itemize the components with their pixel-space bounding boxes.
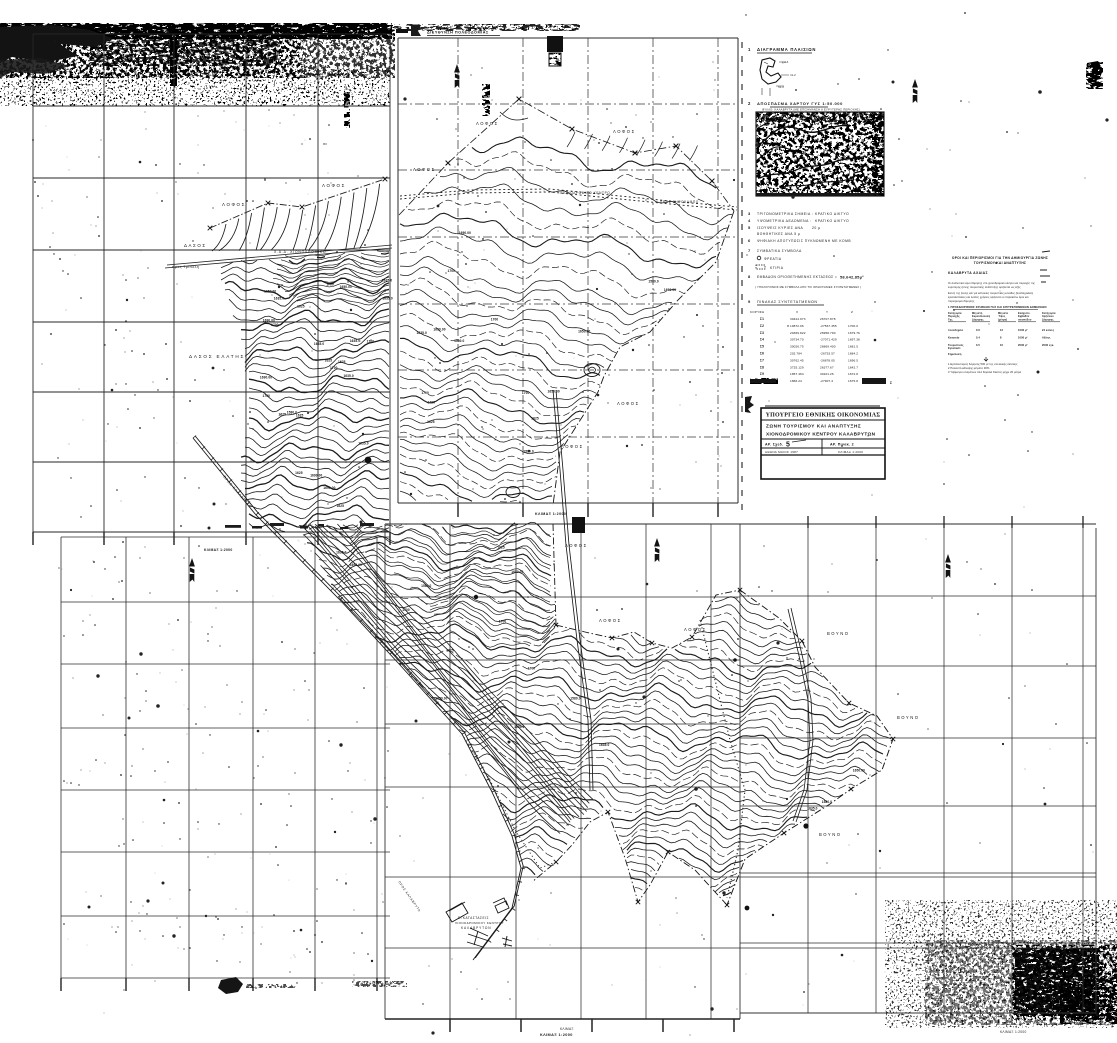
svg-text:ΧΙΟΝΟΔΡΟΜΙΚΟΥ ΚΕΝΤΡΟΥ: ΧΙΟΝΟΔΡΟΜΙΚΟΥ ΚΕΝΤΡΟΥ [455,921,504,925]
svg-text:ΕΜΒΑΔΟΝ ΟΡΙΟΘΕΤΗΜΕΝΗΣ ΕΚΤΑΣΕΩΣ: ΕΜΒΑΔΟΝ ΟΡΙΟΘΕΤΗΜΕΝΗΣ ΕΚΤΑΣΕΩΣ = [757,275,837,279]
svg-text:ΚΤΙΡΙΑ: ΚΤΙΡΙΑ [770,266,784,270]
svg-text:ΒΟΗΘΗΤΙΚΕΣ ΑΝΑ 5 μ: ΒΟΗΘΗΤΙΚΕΣ ΑΝΑ 5 μ [757,232,800,236]
svg-text:ΛΟΦΟΣ: ΛΟΦΟΣ [613,129,636,134]
svg-text:ΠΙΝΑΚΑΣ ΣΥΝΤΕΤΑΓΜΕΝΩΝ: ΠΙΝΑΚΑΣ ΣΥΝΤΕΤΑΓΜΕΝΩΝ [757,300,818,304]
svg-text:12: 12 [1000,328,1004,332]
svg-text:24 κλίνες: 24 κλίνες [1042,328,1055,332]
svg-text:20369.822: 20369.822 [790,331,806,335]
svg-text:1700: 1700 [522,391,530,395]
svg-text:30424.973: 30424.973 [790,317,806,321]
svg-text:ΦΥΛΛΟ: ΚΑΛΑΒΡΥΤΑ (ΜΕ ΕΠΙΣΗΜΑΝΣ: ΦΥΛΛΟ: ΚΑΛΑΒΡΥΤΑ (ΜΕ ΕΠΙΣΗΜΑΝΣΗ Α ΕΥΡΥΤΕ… [762,108,860,112]
svg-text:ΙΣΟΫΨΕΙΣ ΚΥΡΙΕΣ ΑΝΑ: ΙΣΟΫΨΕΙΣ ΚΥΡΙΕΣ ΑΝΑ [757,226,803,230]
svg-text:ΔΙΕΥΘΥΝΣΗ ΠΟΛΕΟΔΟΜΙΑΣ: ΔΙΕΥΘΥΝΣΗ ΠΟΛΕΟΔΟΜΙΑΣ [427,31,489,35]
svg-text:30026.75: 30026.75 [790,345,804,349]
svg-text:Εντός της ζώνης και για κατοικ: Εντός της ζώνης και για κατοικίες τουρισ… [948,291,1034,295]
svg-text:1681.5: 1681.5 [848,345,858,349]
svg-text:1625: 1625 [278,412,286,416]
svg-text:1857.464: 1857.464 [790,372,804,376]
svg-text:1625: 1625 [325,358,333,362]
svg-text:Αθλητ.: Αθλητ. [1042,336,1051,340]
svg-text:1625: 1625 [427,420,435,424]
svg-text:1690.00: 1690.00 [263,318,275,322]
svg-text:1580.0: 1580.0 [454,339,464,343]
svg-text:1700: 1700 [402,608,410,612]
svg-text:26958.790: 26958.790 [820,331,836,335]
svg-text:1700: 1700 [330,366,338,370]
svg-text:1635.0: 1635.0 [417,331,427,335]
svg-text:1625: 1625 [297,305,305,309]
svg-text:1000 μ²: 1000 μ² [1018,336,1028,340]
svg-text:Χ.Α.Δ. ΧΙΟΝΟΔΡΟΜΙΚΟ: Χ.Α.Δ. ΧΙΟΝΟΔΡΟΜΙΚΟ [274,250,326,254]
svg-text:1866.24: 1866.24 [790,379,802,383]
svg-text:1700: 1700 [491,317,499,321]
svg-text:1700.0: 1700.0 [848,324,858,328]
svg-text:-27567.355: -27567.355 [820,324,837,328]
svg-text:ΑΠΟΣΠΑΣΜΑ ΧΑΡΤΟΥ ΓΥΣ 1:50.000: ΑΠΟΣΠΑΣΜΑ ΧΑΡΤΟΥ ΓΥΣ 1:50.000 [757,101,843,106]
svg-text:Υ: Υ [826,310,828,314]
svg-text:ΚΛΙΜΑΞ 1:2000: ΚΛΙΜΑΞ 1:2000 [838,450,863,454]
svg-text:10: 10 [1000,343,1004,347]
svg-text:1679.76: 1679.76 [848,331,860,335]
svg-text:ΔΙΑΓΡΑΜΜΑ ΠΛΑΙΣΙΩΝ: ΔΙΑΓΡΑΜΜΑ ΠΛΑΙΣΙΩΝ [757,47,816,52]
svg-text:ΤΟΥΡΙΣΜΟΥ ΚΑΙ ΑΝΑΠΤΥΞΗΣ: ΤΟΥΡΙΣΜΟΥ ΚΑΙ ΑΝΑΠΤΥΞΗΣ [974,261,1027,265]
svg-text:1650.00: 1650.00 [264,290,276,294]
svg-text:ΛΟΦΟΣ: ΛΟΦΟΣ [222,202,246,207]
svg-text:ΒΟΥΝΟ: ΒΟΥΝΟ [819,832,842,837]
svg-text:Σ7: Σ7 [760,358,764,362]
svg-text:ΣΥΜΒΑΤΙΚΑ ΣΥΜΒΟΛΑ: ΣΥΜΒΑΤΙΚΑ ΣΥΜΒΟΛΑ [757,249,802,253]
svg-text:3725.129: 3725.129 [790,365,804,369]
svg-text:20 μ: 20 μ [812,226,821,230]
svg-text:ΟΡΟΙ ΚΑΙ ΠΕΡΙΟΡΙΣΜΟΙ ΓΙΑ ΤΗΝ Δ: ΟΡΟΙ ΚΑΙ ΠΕΡΙΟΡΙΣΜΟΙ ΓΙΑ ΤΗΝ ΔΗΜΙΟΥΡΓΙΑ … [952,256,1048,260]
svg-text:1625: 1625 [531,417,539,421]
svg-text:1650.00: 1650.00 [547,390,559,394]
svg-text:ΠΡΟΣ ΞΗΡΟΚΑΜΠΟ: ΠΡΟΣ ΞΗΡΟΚΑΜΠΟ [660,200,699,204]
svg-text:2000 εγκ.: 2000 εγκ. [1042,343,1054,347]
svg-text:1700: 1700 [271,323,279,327]
svg-text:1700: 1700 [428,400,436,404]
svg-text:ΑΡ. Σχεδ.: ΑΡ. Σχεδ. [765,443,783,447]
svg-text:ευρύτερης ζώνης τουριστικής αν: ευρύτερης ζώνης τουριστικής ανάπτυξης ορ… [948,285,1021,289]
svg-text:ΔΑΣΟΣ ΕΛΑΤΗΣ: ΔΑΣΟΣ ΕΛΑΤΗΣ [189,354,245,359]
svg-text:οικοπέδου: οικοπέδου [1018,318,1032,321]
svg-text:Σ: Σ [890,381,892,385]
svg-text:ΚΟΡΥΦΗ: ΚΟΡΥΦΗ [750,310,764,314]
svg-text:1642.7: 1642.7 [848,365,858,369]
svg-text:30762.45: 30762.45 [790,358,804,362]
svg-text:1 Εμπλουτισμός δόμησης 500: 1 Εμπλουτισμός δόμησης 500 μ² της συνολι… [948,362,1018,366]
svg-text:Σ2: Σ2 [760,324,764,328]
svg-text:Ξενοδοχεία: Ξενοδοχεία [948,328,963,332]
svg-text:-26753.57: -26753.57 [820,352,835,356]
svg-text:1690.00: 1690.00 [433,327,445,331]
svg-text:19872.06: 19872.06 [790,324,804,328]
svg-text:1635.0: 1635.0 [382,297,392,301]
svg-text:ΛΟΦΟΣ: ΛΟΦΟΣ [617,401,640,406]
svg-text:1650.00: 1650.00 [578,329,590,333]
svg-text:Ζ: Ζ [851,310,853,314]
svg-text:1625: 1625 [295,471,303,475]
svg-text:1580.0: 1580.0 [421,584,431,588]
svg-text:1700: 1700 [528,667,536,671]
svg-text:ΚΡΑΤΙΚΟ ΔΙΚΤΥΟ: ΚΡΑΤΙΚΟ ΔΙΚΤΥΟ [815,212,849,216]
svg-text:ΤΡΙΓΩΝΟΜΕΤΡΙΚΑ ΣΗΜΕΙΑ :: ΤΡΙΓΩΝΟΜΕΤΡΙΚΑ ΣΗΜΕΙΑ : [757,212,813,216]
svg-text:ΨΗΦΙΑΚΗ ΑΠΟΤΥΠΩΣΙΣ ΠΥΚΝΩΜΕΝΗ Μ: ΨΗΦΙΑΚΗ ΑΠΟΤΥΠΩΣΙΣ ΠΥΚΝΩΜΕΝΗ ΜΕ ΚΟΜΒ [757,239,851,243]
svg-text:5: 5 [786,442,790,449]
svg-text:Γης: Γης [948,318,953,321]
svg-text:ΛΟΦΟΣ: ΛΟΦΟΣ [565,543,588,548]
svg-text:χ.α.δ.: χ.α.δ. [782,60,789,64]
svg-text:1635.0: 1635.0 [314,342,324,346]
svg-text:30734.70: 30734.70 [790,338,804,342]
svg-text:ΚΑΛΑΒΡΥΤΑ ΑΧΑΙΑΣ: ΚΑΛΑΒΡΥΤΑ ΑΧΑΙΑΣ [948,271,988,275]
svg-text:Χ: Χ [796,310,798,314]
svg-text:1000 μ²: 1000 μ² [1018,328,1028,332]
svg-text:ΚΑΛΑΒΡΥΤΩΝ: ΚΑΛΑΒΡΥΤΩΝ [461,926,491,930]
svg-text:-27071.429: -27071.429 [820,338,837,342]
svg-text:ΧΙΟΝΟΔΡΟΜΙΚΟΥ ΚΕΝΤΡΟΥ ΚΑΛΑΒΡΥΤ: ΧΙΟΝΟΔΡΟΜΙΚΟΥ ΚΕΝΤΡΟΥ ΚΑΛΑΒΡΥΤΩΝ [766,432,876,437]
svg-text:0.6: 0.6 [976,328,980,332]
svg-text:ΚΛΙΜΑΞ 1:2000: ΚΛΙΜΑΞ 1:2000 [535,512,566,516]
svg-text:1635.0: 1635.0 [807,806,817,810]
svg-text:Σ8: Σ8 [760,365,764,369]
svg-text:1690.00: 1690.00 [323,486,335,490]
svg-text:ΛΟΦΟΣ: ΛΟΦΟΣ [413,167,436,172]
svg-text:30101.26: 30101.26 [820,372,834,376]
svg-text:1 ΠΡΟΣΔΙΟΡΙΣΜΟΣ ΧΡΗΣΕΩΝ ΓΗΣ Κ: 1 ΠΡΟΣΔΙΟΡΙΣΜΟΣ ΧΡΗΣΕΩΝ ΓΗΣ ΚΑΙ ΕΠΙΤΡΕΠΟ… [948,305,1047,309]
svg-text:( ΥΠΟΛΟΓΙΣΜΟΣ ΜΕ ΣΥΜΒΟΛΑ ΑΠΟ Τ: ( ΥΠΟΛΟΓΙΣΜΟΣ ΜΕ ΣΥΜΒΟΛΑ ΑΠΟ ΤΙΣ ΟΡΘΟΓΩΝ… [755,285,861,289]
svg-text:1580.0: 1580.0 [648,280,658,284]
svg-text:26377.67: 26377.67 [820,365,834,369]
svg-text:ΛΟΦΟΣ: ΛΟΦΟΣ [322,183,346,188]
svg-text:1635.0: 1635.0 [350,339,360,343]
svg-text:πλ.2: πλ.2 [790,73,796,77]
svg-text:πλ.3: πλ.3 [778,85,784,89]
svg-text:202.784: 202.784 [790,352,802,356]
svg-text:0.4: 0.4 [976,336,980,340]
svg-text:1700: 1700 [499,620,507,624]
svg-text:26869.400: 26869.400 [820,345,836,349]
svg-text:1690.00: 1690.00 [260,375,272,379]
svg-text:1690.00: 1690.00 [310,474,322,478]
svg-text:ΒΟΥΝΟ: ΒΟΥΝΟ [827,631,850,636]
svg-text:1635.0: 1635.0 [336,551,346,555]
svg-text:Εγκαταστ.: Εγκαταστ. [948,346,962,350]
svg-text:ΚΛΙΜΑΞ: ΚΛΙΜΑΞ [560,1027,574,1031]
svg-text:Σ4: Σ4 [760,338,764,342]
svg-text:-26878.05: -26878.05 [820,358,835,362]
svg-text:ΚΛΙΜΑΞ 1:2000: ΚΛΙΜΑΞ 1:2000 [1000,1030,1027,1034]
svg-text:1690.00: 1690.00 [664,288,676,292]
svg-text:1635.0: 1635.0 [343,374,353,378]
svg-text:1700: 1700 [421,391,429,395]
svg-text:ΦΡΕΑΤΙΑ: ΦΡΕΑΤΙΑ [764,257,782,261]
svg-text:58.642,85μ²: 58.642,85μ² [840,275,864,280]
svg-text:1635.0: 1635.0 [274,296,284,300]
svg-text:Κατοικία: Κατοικία [948,336,960,340]
svg-text:ΛΟΦΟΣ: ΛΟΦΟΣ [561,444,584,449]
svg-text:1625: 1625 [337,504,345,508]
svg-text:ΥΨΟΜΕΤΡΙΚΑ ΔΕΔΟΜΕΝΑ :: ΥΨΟΜΕΤΡΙΚΑ ΔΕΔΟΜΕΝΑ : [757,219,812,223]
svg-text:ΛΟΦΟΣ: ΛΟΦΟΣ [476,121,499,126]
svg-text:1700: 1700 [326,283,334,287]
svg-text:1684.2: 1684.2 [848,352,858,356]
svg-text:ΒΟΥΝΟ: ΒΟΥΝΟ [897,715,920,720]
svg-text:-27907.4: -27907.4 [820,379,833,383]
svg-text:ΚΡΑΤΙΚΟ ΔΙΚΤΥΟ: ΚΡΑΤΙΚΟ ΔΙΚΤΥΟ [815,219,849,223]
svg-text:1650.00: 1650.00 [340,285,352,289]
svg-text:Δόμησης: Δόμησης [1042,318,1054,321]
svg-text:εγκαταστάσεις και λοιπές χρήσε: εγκαταστάσεις και λοιπές χρήσεις ορίζοντ… [948,295,1029,299]
svg-text:Σ6: Σ6 [760,352,764,356]
svg-text:2000 μ²: 2000 μ² [1018,343,1028,347]
svg-text:ΔΑΣΟΣ: ΔΑΣΟΣ [184,243,207,248]
svg-text:ΛΟΦΟΣ: ΛΟΦΟΣ [599,618,622,623]
svg-text:Σ1: Σ1 [760,317,764,321]
svg-text:2 Ποσοστό κάλυψης μέγιστο 3: 2 Ποσοστό κάλυψης μέγιστο 30% [948,366,990,370]
svg-text:ΥΠΟΥΡΓΕΙΟ ΕΘΝΙΚΗΣ ΟΙΚΟΝΟΜΙΑΣ: ΥΠΟΥΡΓΕΙΟ ΕΘΝΙΚΗΣ ΟΙΚΟΝΟΜΙΑΣ [766,413,881,419]
svg-text:ΚΛΙΜΑΞ 1:2000: ΚΛΙΜΑΞ 1:2000 [204,548,233,552]
svg-text:3 Υψόμετρο κτισμάτων από θεμ: 3 Υψόμετρο κτισμάτων από θεμέλια Σκεπές … [948,370,1022,374]
svg-text:1650.00: 1650.00 [435,697,447,701]
svg-text:1672.8: 1672.8 [848,372,858,376]
svg-text:Δόμησης: Δόμησης [972,318,984,321]
svg-text:1675.8: 1675.8 [848,379,858,383]
svg-text:1635.0: 1635.0 [358,442,368,446]
svg-text:1700: 1700 [448,269,456,273]
svg-text:1700: 1700 [263,394,271,398]
svg-text:1635.0: 1635.0 [599,743,609,747]
svg-text:1580.0: 1580.0 [822,800,832,804]
svg-text:1580.0: 1580.0 [570,696,580,700]
svg-text:1696.5: 1696.5 [848,358,858,362]
svg-text:1650.00: 1650.00 [853,769,865,773]
svg-text:Σ9: Σ9 [760,372,764,376]
svg-text:1690.00: 1690.00 [459,231,471,235]
svg-text:1690.00: 1690.00 [350,563,362,567]
svg-text:Σ3: Σ3 [760,331,764,335]
svg-text:1625: 1625 [446,649,454,653]
svg-text:Σ5: Σ5 [760,345,764,349]
svg-text:0.5: 0.5 [976,343,980,347]
svg-text:26707.878: 26707.878 [820,317,836,321]
svg-text:ΛΟΦΟΣ: ΛΟΦΟΣ [684,627,707,632]
svg-text:1580.0: 1580.0 [287,411,297,415]
svg-text:ΖΩΝΗ ΤΟΥΡΙΣΜΟΥ ΚΑΙ ΑΝΑΠΤΥΞΗΣ: ΖΩΝΗ ΤΟΥΡΙΣΜΟΥ ΚΑΙ ΑΝΑΠΤΥΞΗΣ [766,424,861,429]
svg-text:1635.0: 1635.0 [514,725,524,729]
svg-text:περιορισμοί δόμησης: περιορισμοί δόμησης [948,299,975,303]
svg-text:1625: 1625 [338,360,346,364]
svg-text:Σημείωση: Σημείωση [948,352,962,356]
svg-text:ΑΘΗΝΑ ΜΑΙΟΣ 1987: ΑΘΗΝΑ ΜΑΙΟΣ 1987 [765,450,798,454]
svg-text:1635.0: 1635.0 [382,279,392,283]
svg-text:1650.00: 1650.00 [511,570,523,574]
svg-text:(μέτρα): (μέτρα) [998,318,1007,321]
svg-text:ΧΙΟΝΟΔΡΟΜΙΚΟ ΚΕΝΤΡΟ: ΧΙΟΝΟΔΡΟΜΙΚΟ ΚΕΝΤΡΟ [560,191,610,195]
svg-text:Οι αναλυτικοί όροι δόμησης στο: Οι αναλυτικοί όροι δόμησης στο χιονοδρομ… [948,281,1035,285]
svg-text:ΕΓΚΑΤΑΣΤΑΣΕΙΣ: ΕΓΚΑΤΑΣΤΑΣΕΙΣ [458,916,489,920]
svg-text:1697.38: 1697.38 [848,338,860,342]
svg-text:προς Τρίπολη: προς Τρίπολη [172,265,199,269]
svg-text:1625: 1625 [497,545,505,549]
svg-text:ΚΛΙΜΑΞ 1:2000: ΚΛΙΜΑΞ 1:2000 [540,1033,573,1037]
